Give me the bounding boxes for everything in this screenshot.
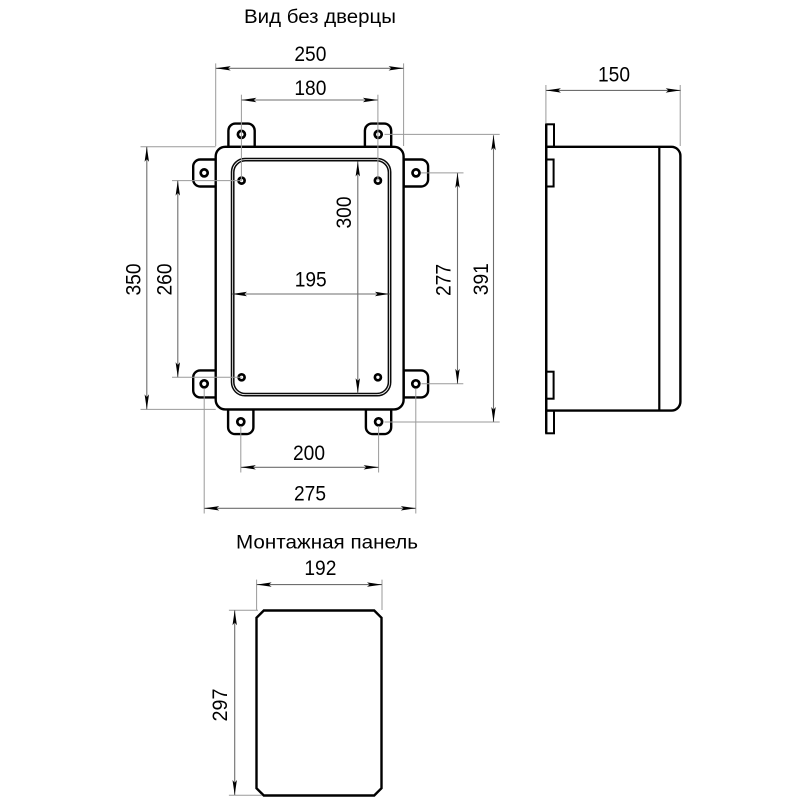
svg-text:277: 277 (432, 264, 455, 296)
svg-text:297: 297 (209, 689, 232, 722)
svg-text:250: 250 (294, 43, 326, 66)
svg-text:150: 150 (598, 63, 630, 86)
svg-text:195: 195 (295, 269, 327, 292)
svg-text:192: 192 (304, 557, 336, 580)
svg-text:180: 180 (294, 77, 326, 100)
svg-text:200: 200 (293, 442, 325, 465)
svg-text:275: 275 (294, 483, 326, 506)
svg-text:260: 260 (153, 264, 176, 296)
svg-text:391: 391 (470, 263, 493, 295)
svg-text:300: 300 (333, 197, 356, 229)
svg-text:Монтажная панель: Монтажная панель (236, 533, 418, 554)
svg-text:350: 350 (122, 264, 145, 296)
svg-text:Вид без дверцы: Вид без дверцы (244, 7, 396, 28)
